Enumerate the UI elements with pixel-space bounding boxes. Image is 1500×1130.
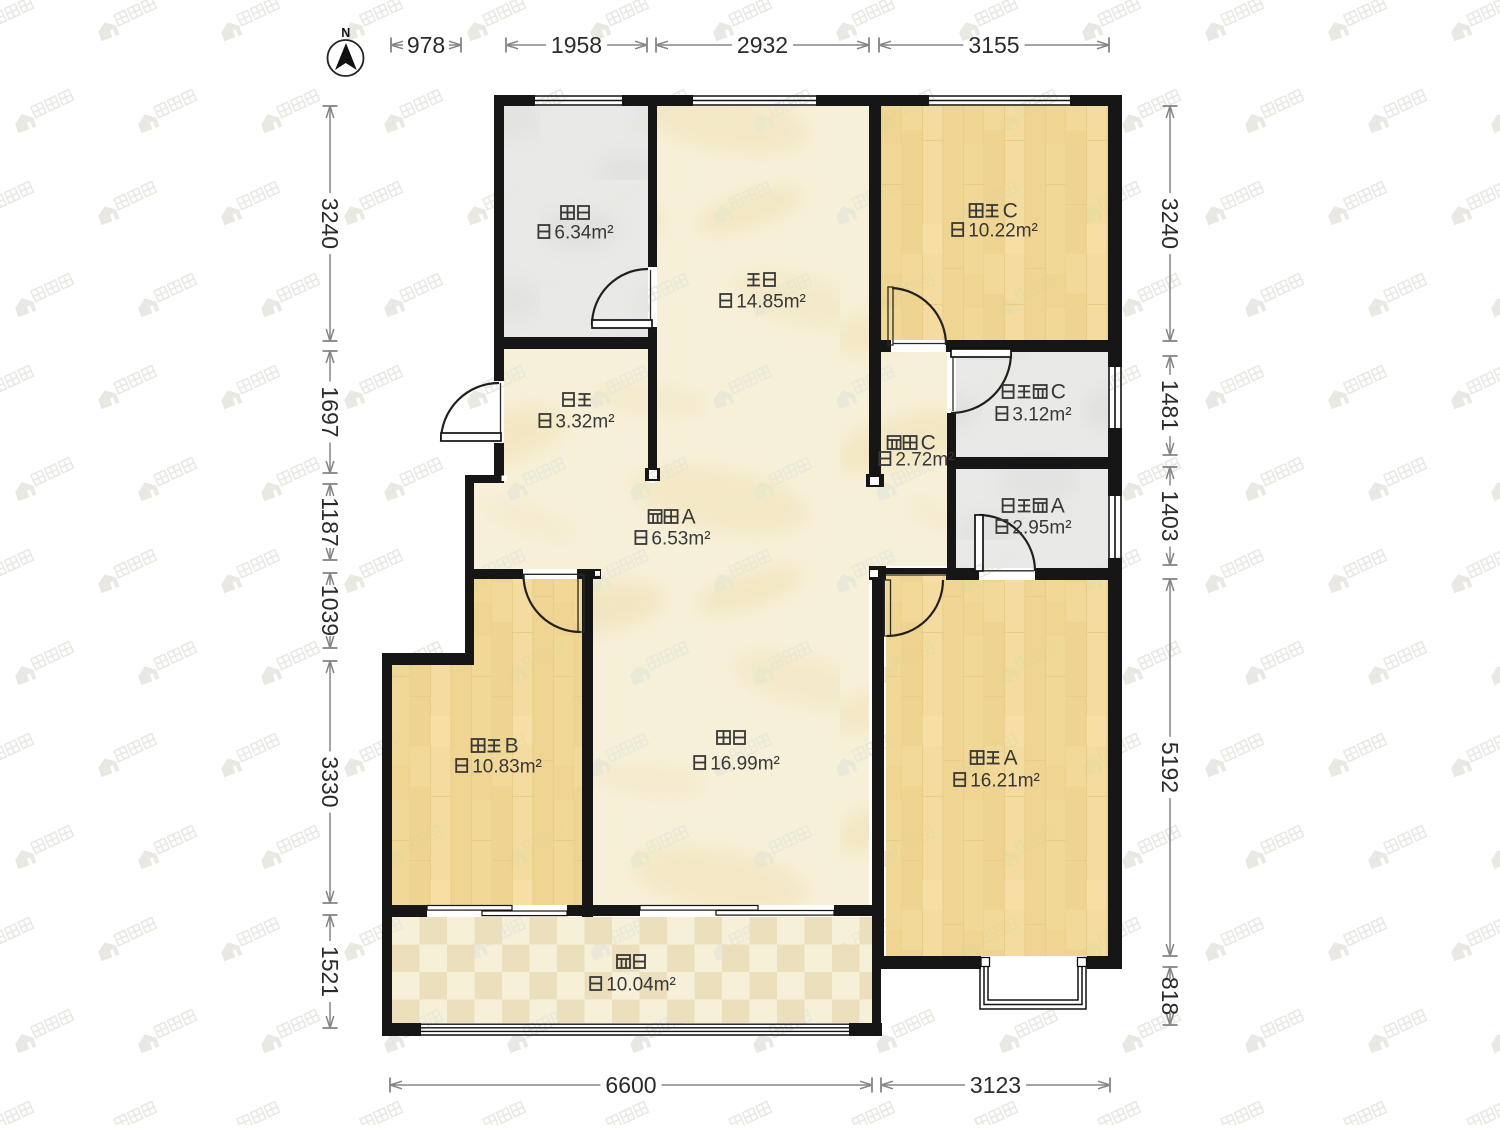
svg-text:C: C <box>1051 381 1066 404</box>
svg-text:16.21m²: 16.21m² <box>970 771 1040 792</box>
svg-text:B: B <box>505 735 519 758</box>
svg-text:10.22m²: 10.22m² <box>968 221 1038 242</box>
svg-text:A: A <box>682 506 696 529</box>
svg-text:1521: 1521 <box>317 946 343 997</box>
svg-text:A: A <box>1004 747 1018 770</box>
svg-text:10.04m²: 10.04m² <box>606 975 676 996</box>
svg-text:3155: 3155 <box>968 32 1019 58</box>
svg-text:C: C <box>1003 200 1018 223</box>
svg-text:3330: 3330 <box>317 756 343 807</box>
svg-text:N: N <box>341 26 350 40</box>
svg-text:14.85m²: 14.85m² <box>736 292 806 313</box>
svg-text:3.32m²: 3.32m² <box>555 412 614 433</box>
svg-text:1958: 1958 <box>551 32 602 58</box>
svg-text:6.53m²: 6.53m² <box>651 529 710 550</box>
svg-text:3123: 3123 <box>970 1072 1021 1098</box>
svg-text:A: A <box>1051 495 1065 518</box>
svg-text:3.12m²: 3.12m² <box>1012 405 1071 426</box>
svg-text:3240: 3240 <box>1157 198 1183 249</box>
svg-text:1039: 1039 <box>317 585 343 636</box>
svg-text:1697: 1697 <box>317 386 343 437</box>
svg-text:16.99m²: 16.99m² <box>710 754 780 775</box>
svg-text:978: 978 <box>407 32 445 58</box>
svg-text:1481: 1481 <box>1157 380 1183 431</box>
svg-text:10.83m²: 10.83m² <box>472 757 542 778</box>
svg-text:2.72m²: 2.72m² <box>895 450 954 471</box>
svg-text:2932: 2932 <box>737 32 788 58</box>
svg-text:3240: 3240 <box>317 198 343 249</box>
svg-text:6600: 6600 <box>605 1072 656 1098</box>
svg-text:2.95m²: 2.95m² <box>1012 518 1071 539</box>
svg-text:1187: 1187 <box>317 497 343 546</box>
svg-text:1403: 1403 <box>1157 490 1183 541</box>
svg-text:6.34m²: 6.34m² <box>554 223 613 244</box>
svg-text:5192: 5192 <box>1157 742 1183 793</box>
svg-text:818: 818 <box>1157 977 1183 1015</box>
